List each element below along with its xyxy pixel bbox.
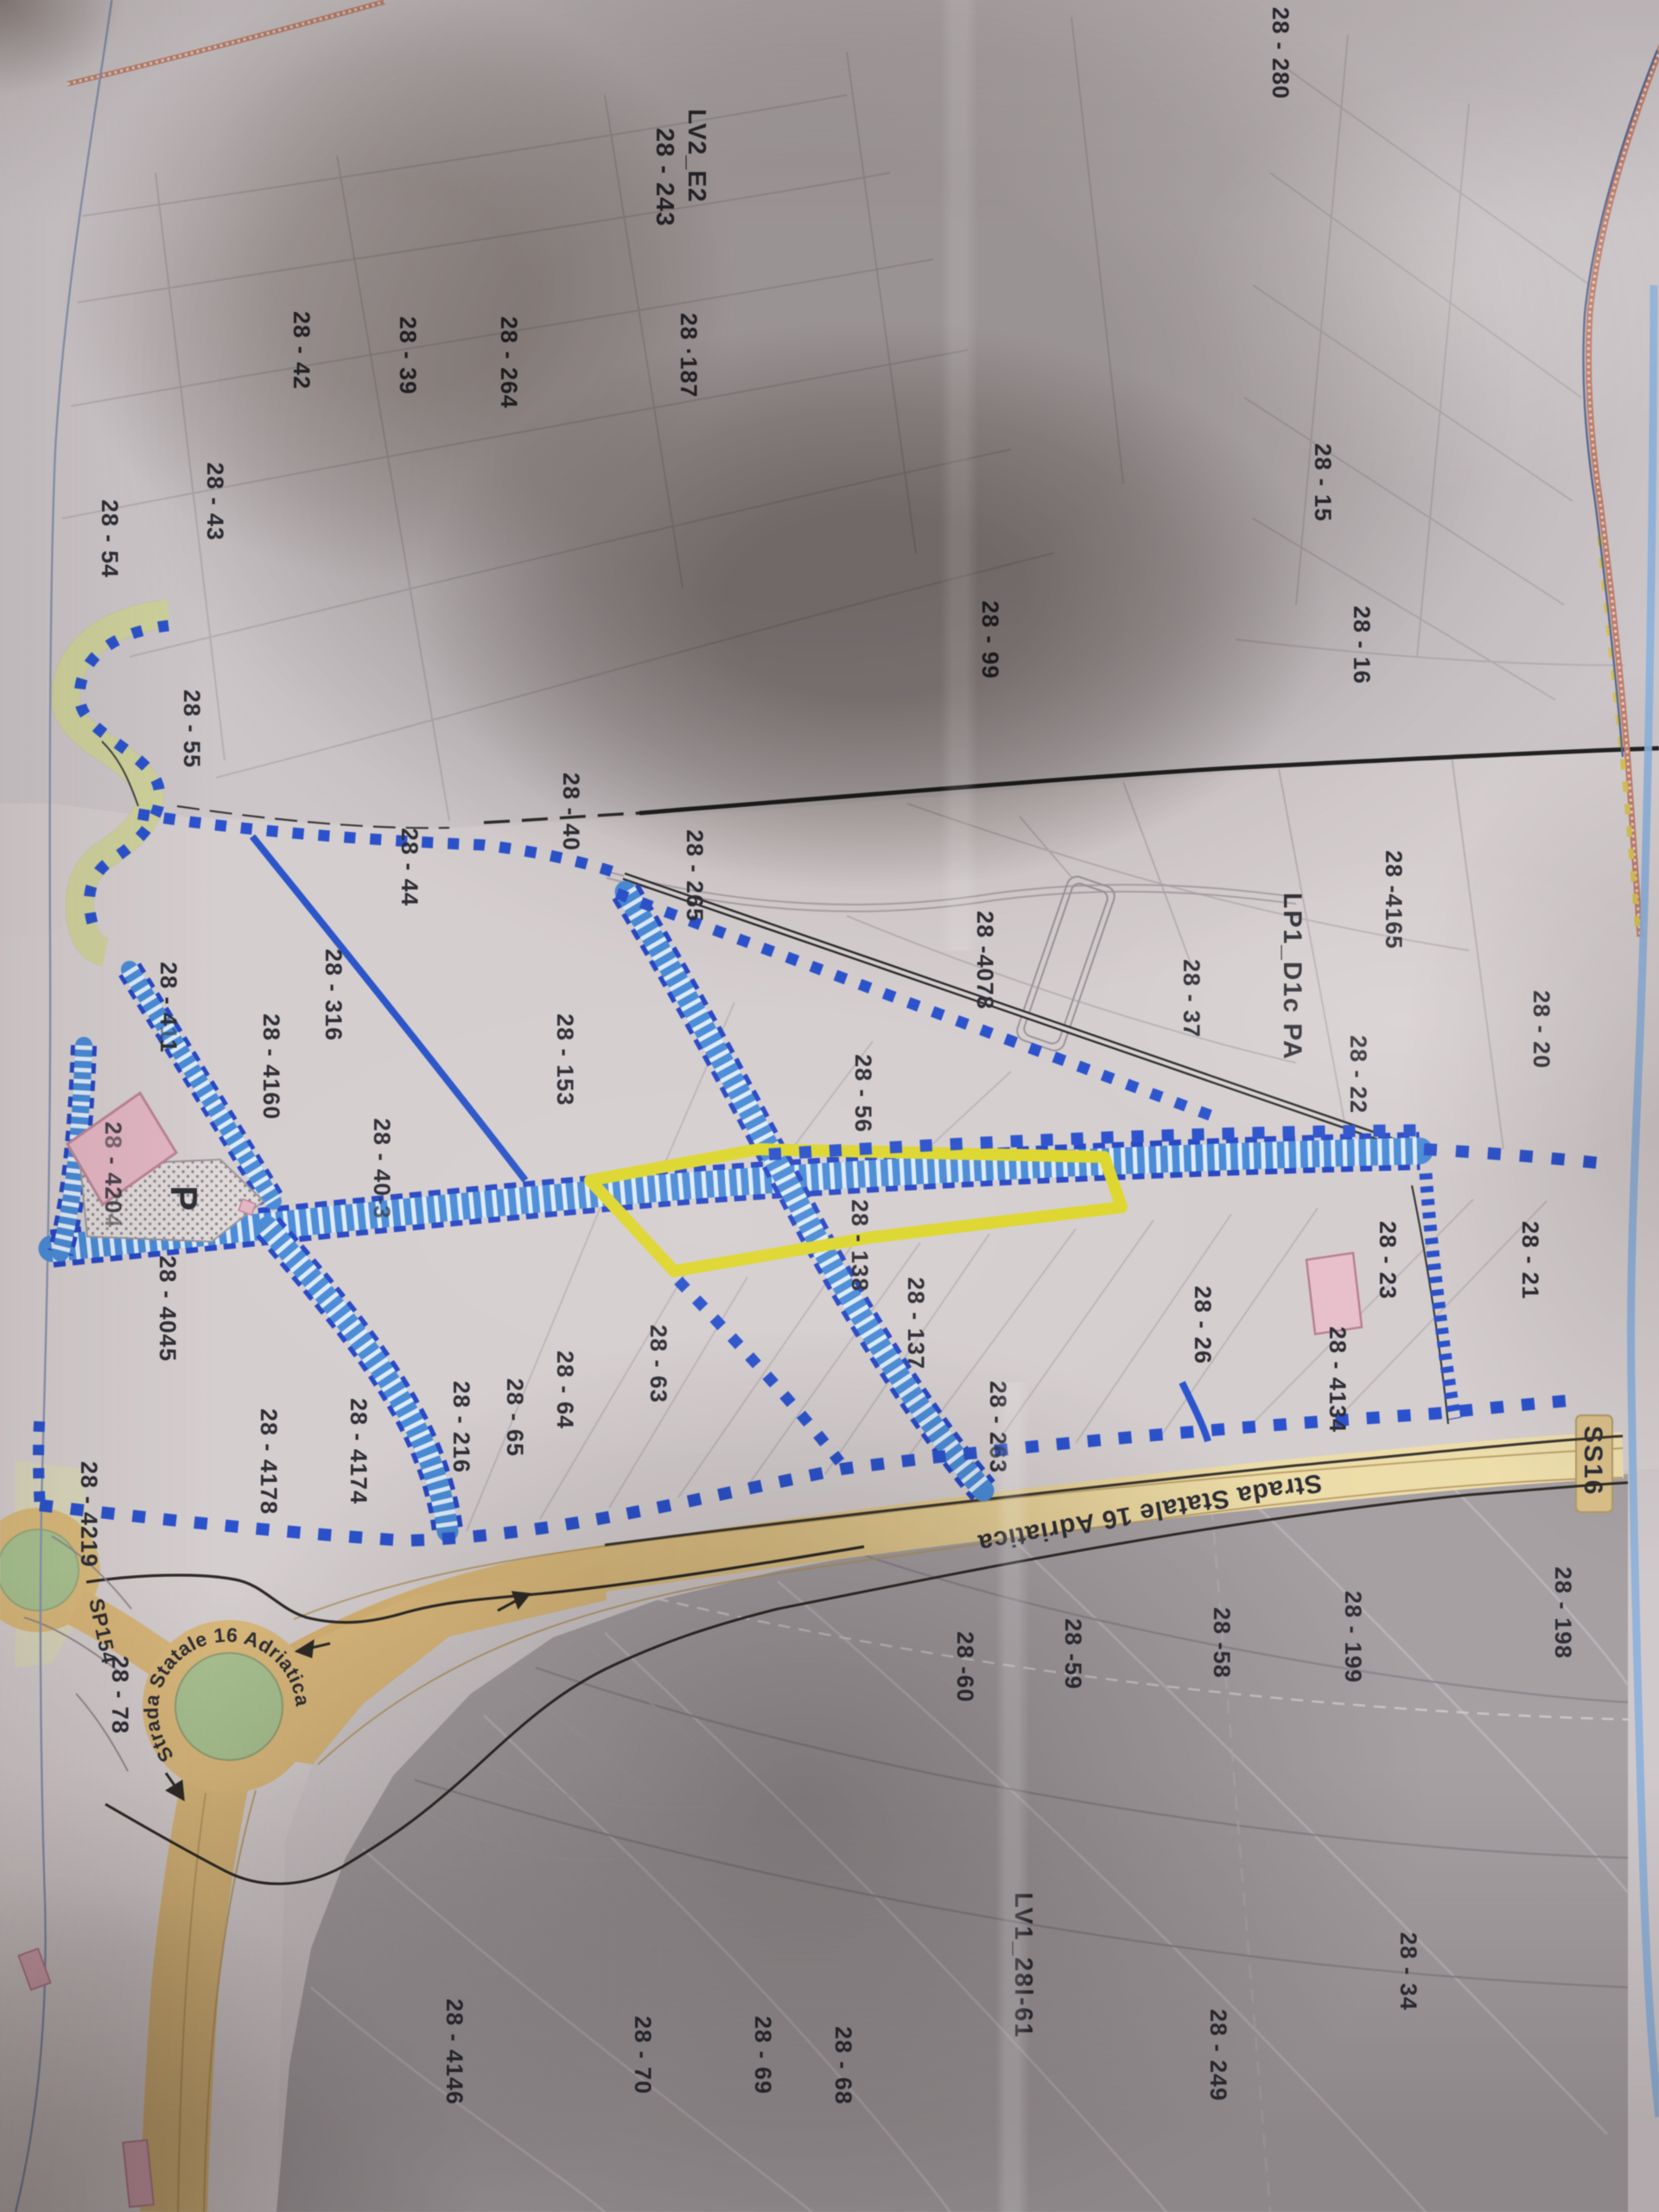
svg-text:P: P xyxy=(162,1185,205,1211)
svg-text:28 - 411: 28 - 411 xyxy=(156,962,181,1053)
svg-text:28 - 153: 28 - 153 xyxy=(552,1014,578,1106)
svg-text:28 -4078: 28 -4078 xyxy=(972,911,998,1010)
svg-text:28 - 216: 28 - 216 xyxy=(448,1381,474,1473)
svg-text:28 - 138: 28 - 138 xyxy=(847,1199,873,1292)
svg-text:28 - 44: 28 - 44 xyxy=(397,828,423,906)
svg-text:28 - 316: 28 - 316 xyxy=(321,949,346,1041)
svg-text:28 - 4174: 28 - 4174 xyxy=(346,1398,372,1504)
svg-text:28 - 4204: 28 - 4204 xyxy=(100,1122,126,1228)
svg-text:28 - 16: 28 - 16 xyxy=(1349,606,1375,684)
svg-text:28 - 23: 28 - 23 xyxy=(1375,1221,1401,1300)
svg-text:LV1_28l-61: LV1_28l-61 xyxy=(1009,1892,1037,2038)
svg-text:28 - 243: 28 - 243 xyxy=(651,128,678,226)
svg-text:28 - 280: 28 - 280 xyxy=(1268,7,1294,99)
svg-text:28 - 4219: 28 - 4219 xyxy=(76,1461,102,1567)
svg-text:28 - 21: 28 - 21 xyxy=(1517,1221,1543,1300)
svg-text:28 - 20: 28 - 20 xyxy=(1529,990,1554,1069)
svg-text:28 - 64: 28 - 64 xyxy=(552,1351,578,1429)
svg-text:28 - 4146: 28 - 4146 xyxy=(442,1999,467,2105)
svg-text:28 - 42: 28 - 42 xyxy=(289,311,315,390)
svg-text:28 - 99: 28 - 99 xyxy=(977,601,1003,679)
svg-text:28 - 137: 28 - 137 xyxy=(903,1277,929,1370)
svg-text:28 - 263: 28 - 263 xyxy=(985,1381,1011,1473)
svg-text:28 - 22: 28 - 22 xyxy=(1345,1035,1371,1114)
svg-text:28 - 69: 28 - 69 xyxy=(750,2016,776,2094)
svg-text:28 - 37: 28 - 37 xyxy=(1179,959,1205,1038)
svg-text:28 - 54: 28 - 54 xyxy=(97,499,123,578)
svg-text:28 - 78: 28 - 78 xyxy=(107,1656,133,1734)
svg-text:28 - 43: 28 - 43 xyxy=(202,462,228,541)
svg-text:28 -60: 28 -60 xyxy=(952,1631,978,1703)
svg-text:28 - 4160: 28 - 4160 xyxy=(258,1014,284,1120)
svg-text:28 - 40-3: 28 - 40-3 xyxy=(369,1118,395,1219)
svg-text:28 ·187: 28 ·187 xyxy=(676,313,702,398)
svg-text:28 - 56: 28 - 56 xyxy=(850,1054,876,1133)
svg-text:28 - 4178: 28 - 4178 xyxy=(256,1408,282,1515)
svg-text:28 - 40: 28 - 40 xyxy=(558,772,584,851)
svg-text:28 - 65: 28 - 65 xyxy=(502,1378,528,1457)
svg-text:LP1_D1c PA: LP1_D1c PA xyxy=(1278,893,1306,1061)
svg-text:28 - 68: 28 - 68 xyxy=(830,2026,856,2105)
svg-text:28 - 4045: 28 - 4045 xyxy=(155,1255,181,1362)
svg-text:28 - 199: 28 - 199 xyxy=(1340,1591,1366,1683)
svg-text:28 -4165: 28 -4165 xyxy=(1381,850,1407,950)
svg-text:28 - 34: 28 - 34 xyxy=(1395,1932,1421,2011)
svg-text:28 - 26: 28 - 26 xyxy=(1190,1286,1216,1364)
svg-text:28 - 4134: 28 - 4134 xyxy=(1325,1326,1351,1433)
svg-text:28 - 15: 28 - 15 xyxy=(1310,443,1336,522)
svg-text:28 - 39: 28 - 39 xyxy=(395,316,421,395)
svg-text:28 - 265: 28 - 265 xyxy=(682,829,708,922)
svg-text:28 - 70: 28 - 70 xyxy=(630,2016,656,2094)
svg-text:28 - 264: 28 - 264 xyxy=(496,316,522,409)
svg-text:28 - 198: 28 - 198 xyxy=(1550,1567,1576,1659)
svg-text:28 -59: 28 -59 xyxy=(1060,1618,1086,1690)
svg-text:LV2_E2: LV2_E2 xyxy=(683,109,710,203)
svg-text:28 - 55: 28 - 55 xyxy=(179,690,205,768)
svg-text:28 -58: 28 -58 xyxy=(1209,1607,1235,1679)
svg-text:28 - 249: 28 - 249 xyxy=(1205,2009,1231,2101)
svg-text:28 - 63: 28 - 63 xyxy=(645,1325,671,1403)
